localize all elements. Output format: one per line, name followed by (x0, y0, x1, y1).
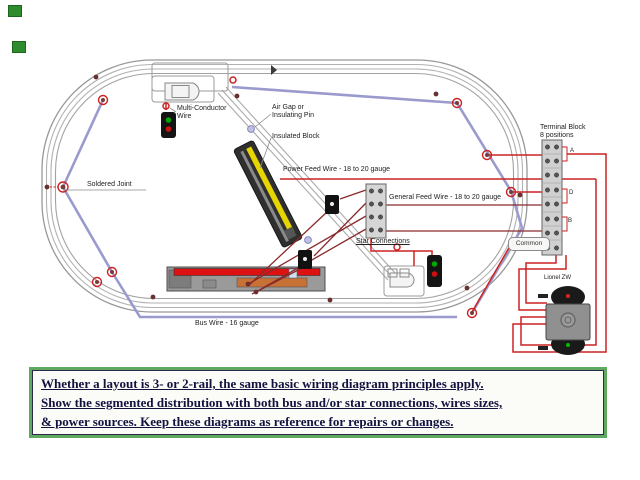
label-line: Multi-Conductor (177, 105, 226, 113)
caption-line-1: Whether a layout is 3- or 2-rail, the sa… (41, 374, 595, 393)
label-transformer: Lionel ZW (544, 275, 571, 282)
label-block-b: B (568, 218, 572, 225)
label-star-connections: Star Connections (356, 238, 410, 246)
label-block-d: D (569, 190, 573, 197)
caption-line-3: & power sources. Keep these diagrams as … (41, 412, 595, 431)
label-power-feed-wire: Power Feed Wire - 18 to 20 gauge (283, 166, 390, 174)
label-line: Wire (177, 113, 226, 121)
lockon-connector-1 (325, 195, 339, 214)
label-line: Air Gap or (272, 104, 314, 112)
label-air-gap: Air Gap or Insulating Pin (272, 104, 314, 120)
lockon-connector-2 (298, 250, 312, 269)
label-soldered-joint: Soldered Joint (87, 181, 132, 189)
label-general-feed-wire: General Feed Wire - 18 to 20 gauge (389, 194, 501, 202)
caption-box: Whether a layout is 3- or 2-rail, the sa… (29, 367, 607, 438)
star-terminal-strip (366, 184, 386, 238)
label-bus-wire: Bus Wire - 16 gauge (195, 320, 259, 328)
transformer-green-light (566, 343, 570, 347)
turnout-bottom (384, 266, 424, 296)
label-multi-conductor-wire: Multi-Conductor Wire (177, 105, 226, 121)
label-terminal-block: Terminal Block 8 positions (540, 124, 586, 140)
station-platform (167, 267, 325, 291)
label-insulated-block: Insulated Block (272, 133, 319, 141)
label-line: Terminal Block (540, 124, 586, 132)
caption-line-2: Show the segmented distribution with bot… (41, 393, 595, 412)
label-line: Insulating Pin (272, 112, 314, 120)
caption-inner-frame: Whether a layout is 3- or 2-rail, the sa… (32, 370, 604, 435)
label-line: 8 positions (540, 132, 586, 140)
label-common: Common (516, 240, 542, 247)
common-label-box: Common (508, 237, 550, 251)
signal-1 (161, 112, 176, 138)
label-block-a: A (570, 148, 574, 155)
insulated-track-section (233, 140, 303, 248)
wiring-diagram-page: Multi-Conductor Wire Air Gap or Insulati… (0, 0, 640, 480)
transformer-red-light (566, 294, 570, 298)
signal-2 (427, 255, 442, 287)
